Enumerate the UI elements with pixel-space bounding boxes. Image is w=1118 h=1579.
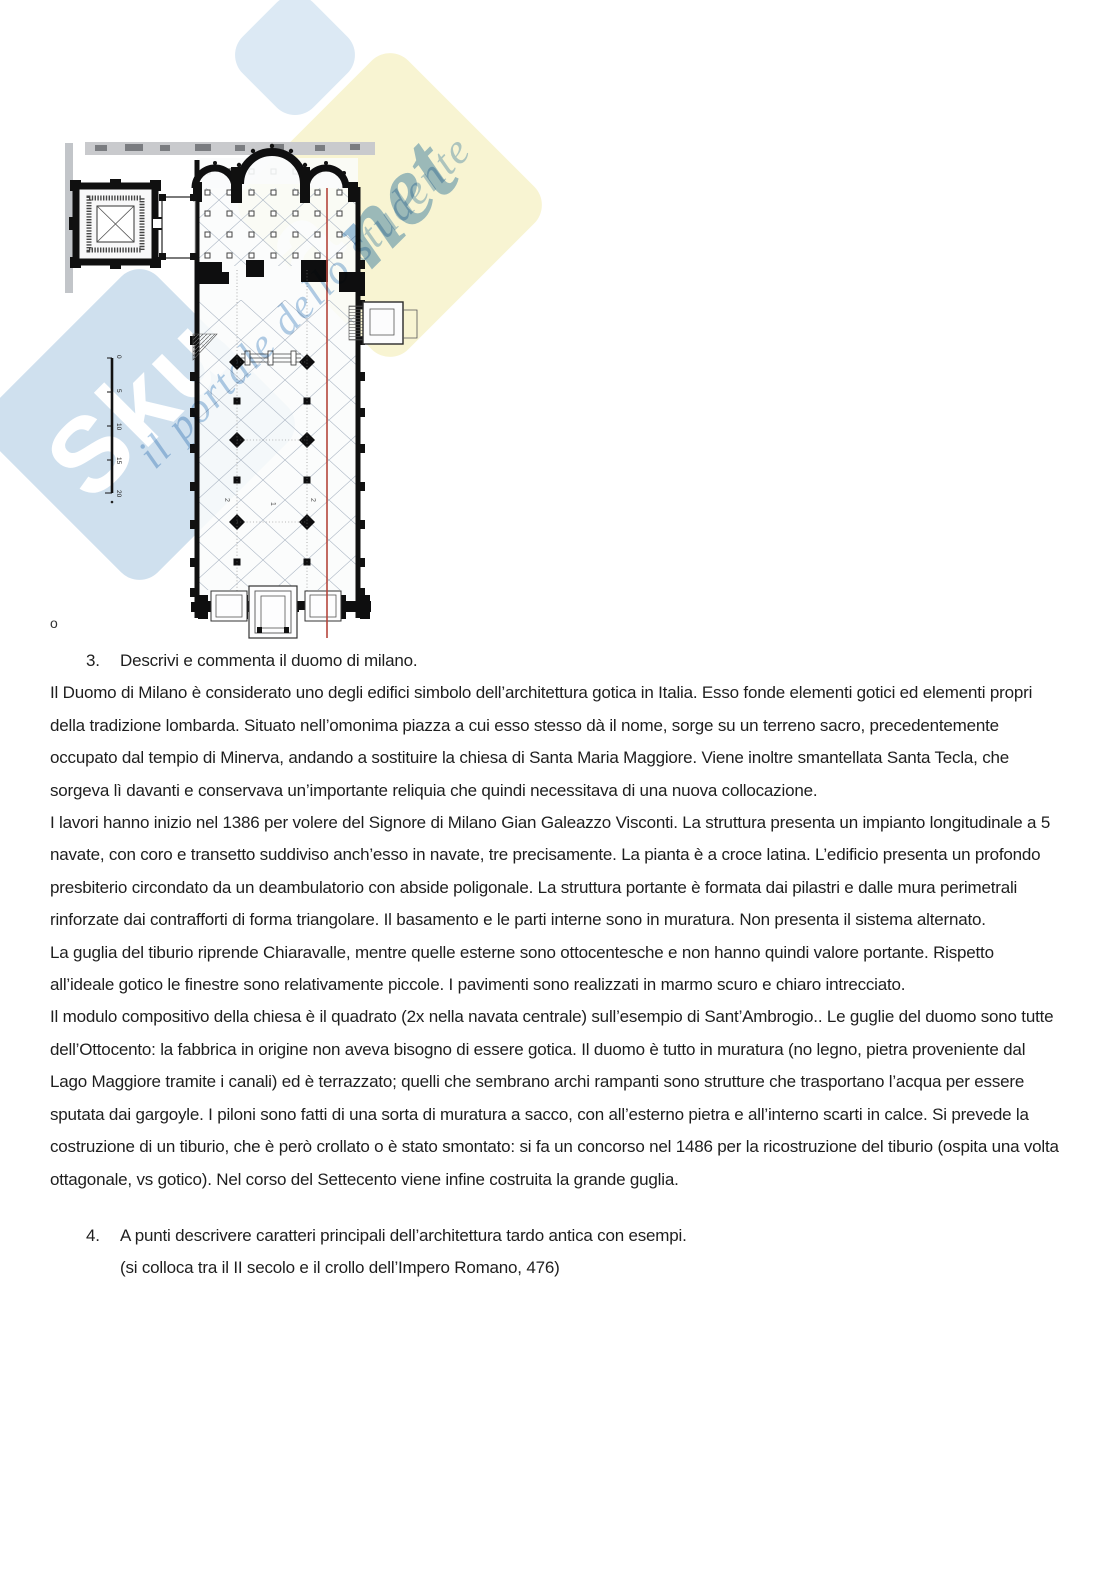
svg-text:5: 5 — [115, 389, 122, 393]
svg-text:2: 2 — [309, 498, 316, 502]
document-body: 3. Descrivi e commenta il duomo di milan… — [0, 645, 1118, 1285]
passage — [159, 194, 197, 260]
question-4: 4. A punti descrivere caratteri principa… — [0, 1220, 1118, 1285]
svg-text:2: 2 — [223, 498, 230, 502]
tower-block — [69, 179, 162, 269]
svg-text:15: 15 — [115, 457, 122, 465]
scale-bar — [105, 358, 112, 493]
floor-plan-figure: Skuola — [0, 40, 1118, 645]
question-4-subtext: (si colloca tra il II secolo e il crollo… — [120, 1252, 1118, 1284]
body-paragraph: La guglia del tiburio riprende Chiaraval… — [50, 937, 1062, 1002]
answer-paragraphs: Il Duomo di Milano è considerato uno deg… — [50, 677, 1062, 1196]
svg-text:20: 20 — [115, 490, 122, 498]
sacristy-wing — [349, 302, 417, 344]
body-paragraph: Il Duomo di Milano è considerato uno deg… — [50, 677, 1062, 807]
question-4-number: 4. — [86, 1220, 120, 1252]
apses — [195, 152, 346, 188]
body-paragraph: Il modulo compositivo della chiesa è il … — [50, 1001, 1062, 1195]
body-paragraph: I lavori hanno inizio nel 1386 per voler… — [50, 807, 1062, 937]
svg-text:1: 1 — [269, 502, 276, 506]
document-page: Skuola — [0, 0, 1118, 1579]
stray-mark: o — [50, 615, 58, 631]
question-4-text: A punti descrivere caratteri principali … — [120, 1220, 687, 1252]
svg-text:10: 10 — [115, 423, 122, 431]
svg-text:0: 0 — [115, 355, 122, 359]
